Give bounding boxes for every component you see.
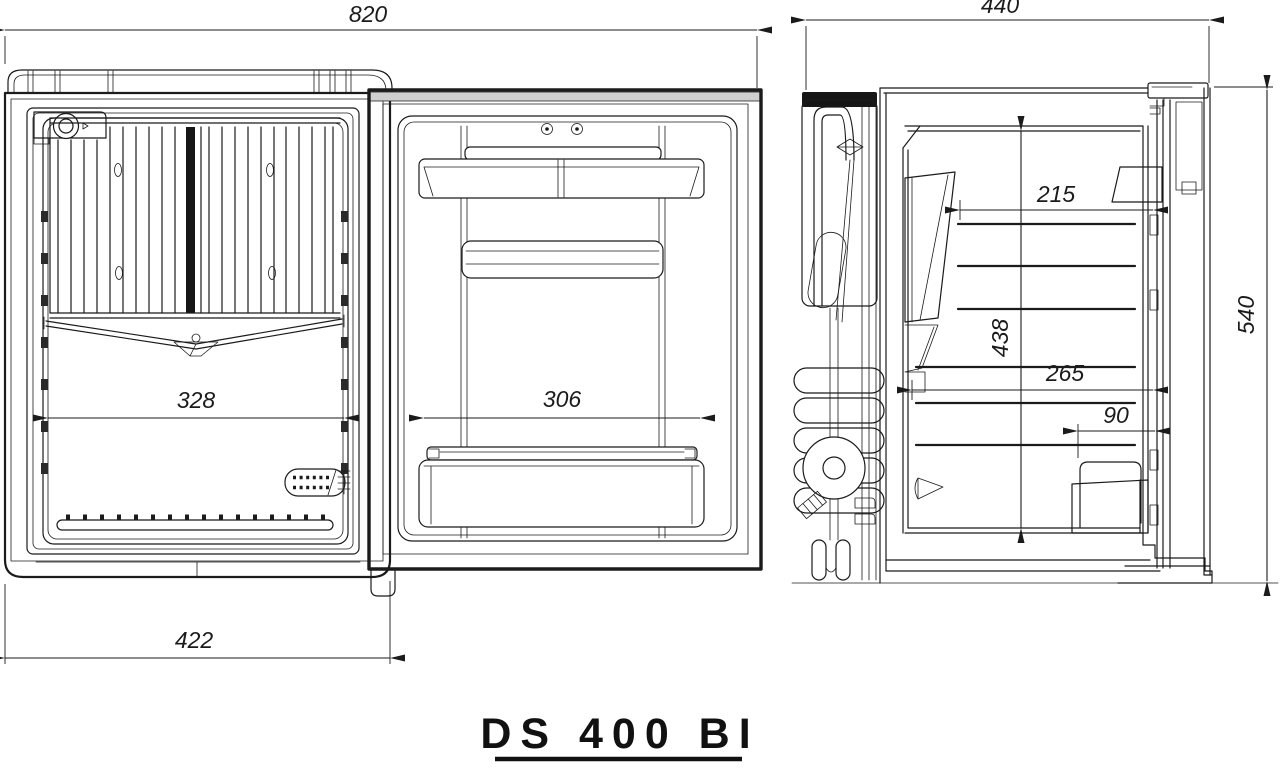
door-bin-section	[1072, 462, 1148, 533]
door-top-edge	[368, 92, 761, 101]
upper-door-bracket	[1112, 167, 1162, 202]
side-view: 440 215 438 265 90 540	[792, 0, 1278, 583]
dim-label-540: 540	[1233, 296, 1259, 335]
evaporator-fins	[50, 118, 340, 318]
dim-label-90: 90	[1103, 402, 1129, 428]
door-bin-profile	[1176, 102, 1202, 190]
dim-label-438: 438	[987, 319, 1013, 358]
dim-label-265: 265	[1045, 360, 1085, 386]
fin-center-divider	[186, 127, 195, 313]
dim-label-215: 215	[1036, 181, 1076, 207]
door-bottom-hinge	[371, 569, 395, 596]
burner-housing	[803, 437, 865, 499]
bottom-rail	[57, 517, 333, 530]
drip-tray	[44, 315, 344, 356]
dimension-overall-height: 540	[1214, 87, 1273, 581]
model-title: DS 400 BI	[480, 710, 759, 758]
rating-plate	[285, 469, 350, 496]
dimension-overall-depth: 440	[806, 0, 1209, 90]
dimension-cabinet-width: 422	[5, 581, 390, 664]
cooling-unit	[794, 92, 884, 580]
thermostat-panel	[34, 112, 106, 144]
dimension-upper-depth: 215	[960, 181, 1153, 220]
door-section	[1150, 88, 1212, 575]
burner-bracket	[855, 498, 875, 524]
cabinet-body	[5, 93, 390, 577]
door-bottom-bin	[419, 447, 704, 527]
title-block: DS 400 BI	[480, 710, 759, 759]
thermostat-knob	[54, 114, 79, 139]
dim-label-440: 440	[981, 0, 1020, 18]
refrigerator-dimension-drawing: 328 306	[0, 0, 1280, 769]
dim-label-422: 422	[175, 627, 214, 653]
cabinet-top-cap	[8, 70, 392, 93]
wire-shelves	[916, 224, 1135, 445]
dim-label-820: 820	[349, 1, 388, 27]
valve	[837, 139, 863, 155]
door-middle-rack	[462, 241, 663, 278]
door-panel: 306	[368, 90, 761, 596]
burner-feet	[812, 540, 850, 580]
door-top-bin	[419, 147, 704, 198]
door-screws	[542, 124, 583, 135]
dim-label-306: 306	[543, 386, 582, 412]
evaporator-section	[905, 172, 955, 392]
technical-drawing-page: 328 306	[0, 0, 1280, 769]
dimension-interior-width: 328	[48, 387, 344, 418]
base-front-step	[1118, 533, 1212, 583]
dim-label-328: 328	[177, 387, 216, 413]
drain-outlet	[915, 478, 943, 499]
dimension-interior-height: 438	[987, 131, 1021, 528]
front-view: 328 306	[5, 1, 761, 664]
absorber-coil	[794, 308, 884, 540]
top-hinge-cap	[1148, 83, 1208, 98]
